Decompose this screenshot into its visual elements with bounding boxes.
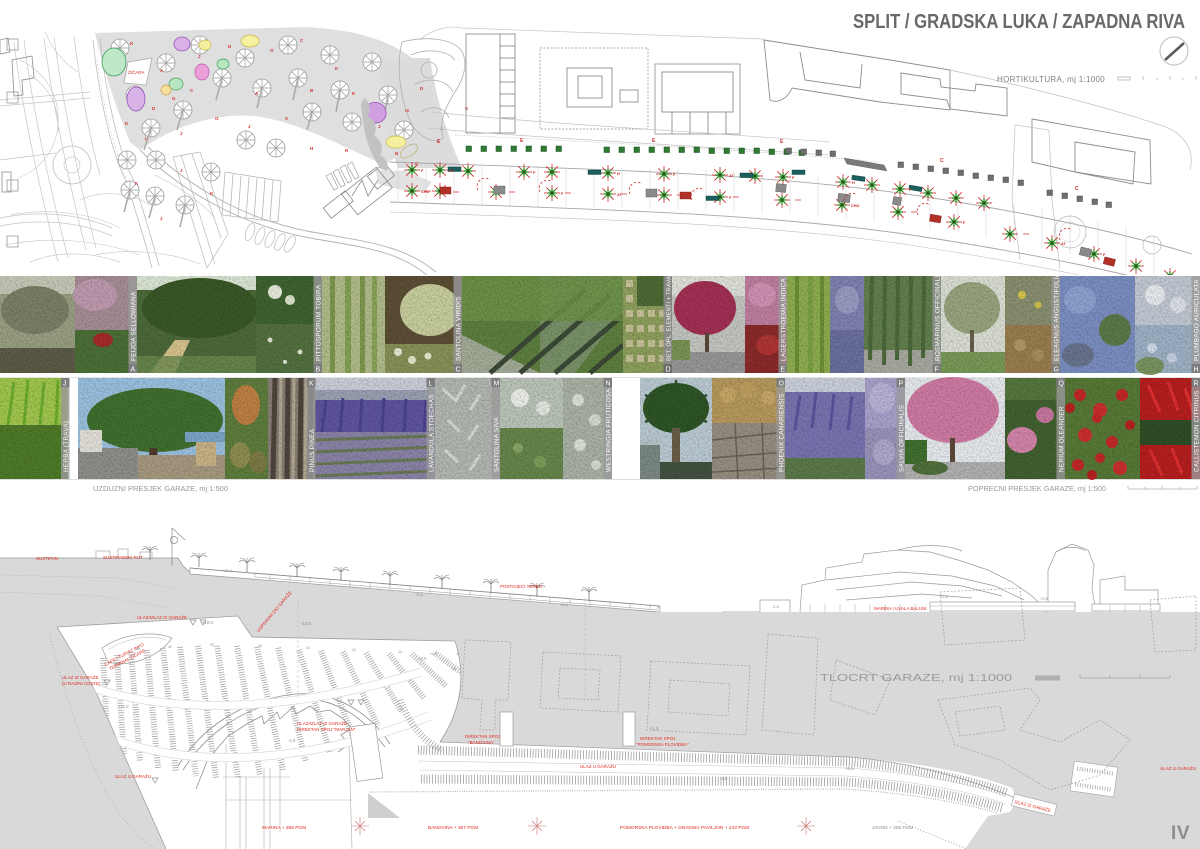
svg-text:C: C: [940, 158, 944, 164]
svg-text:F: F: [963, 221, 966, 225]
svg-text:G: G: [1054, 367, 1059, 374]
svg-text:M: M: [494, 381, 500, 388]
svg-text:PITTOSPORUM TOBIRA: PITTOSPORUM TOBIRA: [316, 284, 323, 361]
svg-text:E: E: [520, 138, 524, 144]
svg-text:"BANOVINA": "BANOVINA": [468, 740, 495, 745]
svg-text:DIREKTAN SPOJ: DIREKTAN SPOJ: [465, 734, 500, 739]
svg-text:+2,0: +2,0: [430, 652, 437, 656]
svg-text:E: E: [781, 367, 786, 374]
svg-text:F: F: [533, 171, 536, 175]
svg-text:+4,5: +4,5: [415, 592, 424, 597]
svg-text:F: F: [935, 367, 939, 374]
svg-text:LAGERSTROEMIA INDICA: LAGERSTROEMIA INDICA: [781, 278, 788, 361]
svg-text:SUSTIPAN: SUSTIPAN: [36, 556, 58, 561]
svg-text:J: J: [160, 216, 163, 221]
svg-text:SANTOLINA SIVA: SANTOLINA SIVA: [494, 416, 501, 472]
svg-text:P: P: [899, 381, 904, 388]
svg-text:L: L: [429, 381, 433, 388]
svg-text:F: F: [729, 196, 732, 200]
svg-text:POSTOJEĆI TEREN: POSTOJEĆI TEREN: [500, 583, 542, 589]
svg-text:N: N: [395, 151, 398, 156]
svg-text:WESTRINGIA FRUTICOSA: WESTRINGIA FRUTICOSA: [606, 388, 613, 472]
svg-text:H: H: [1194, 367, 1199, 374]
svg-text:BANOVINA + 307 PGM: BANOVINA + 307 PGM: [428, 825, 478, 831]
svg-text:-1,5: -1,5: [772, 604, 780, 609]
svg-text:R: R: [1194, 381, 1199, 388]
svg-text:J: J: [180, 168, 183, 173]
svg-text:J: J: [180, 131, 183, 136]
svg-text:LAVANDULA STOECHAS: LAVANDULA STOECHAS: [429, 394, 436, 472]
svg-text:J: J: [63, 381, 67, 388]
svg-text:DIREKTAN SPOJ "MARJAN": DIREKTAN SPOJ "MARJAN": [297, 727, 356, 732]
svg-text:CALLISTEMON CITRINUS: CALLISTEMON CITRINUS: [1194, 390, 1200, 472]
svg-text:ELEAGNUS ANGUSTIFOLIA: ELEAGNUS ANGUSTIFOLIA: [1054, 272, 1061, 361]
svg-text:H: H: [617, 172, 620, 176]
svg-text:X: X: [285, 116, 288, 121]
svg-text:+2,5: +2,5: [1040, 596, 1049, 601]
svg-text:42: 42: [168, 645, 172, 649]
svg-text:FEIJOA SELLOWIANA: FEIJOA SELLOWIANA: [131, 291, 138, 361]
svg-text:+2,5: +2,5: [940, 594, 949, 599]
svg-text:BET. OPL. ELEMENTI + TRAVA: BET. OPL. ELEMENTI + TRAVA: [667, 276, 673, 361]
svg-text:HERBA (TRAVA): HERBA (TRAVA): [63, 421, 70, 472]
svg-text:E: E: [652, 138, 656, 144]
svg-text:F: F: [561, 192, 564, 196]
svg-text:ROSMARINUS OFFICINALIS: ROSMARINUS OFFICINALIS: [935, 271, 942, 361]
svg-text:K: K: [309, 381, 314, 388]
svg-text:A: A: [131, 367, 136, 374]
svg-text:D: D: [666, 367, 671, 374]
svg-text:CHO: CHO: [421, 190, 429, 194]
svg-text:-2,0: -2,0: [720, 776, 728, 781]
svg-text:B: B: [316, 367, 321, 374]
svg-text:+10,0: +10,0: [300, 621, 311, 626]
svg-text:AT: AT: [617, 193, 622, 197]
svg-text:SUSTIPANSKI PUT: SUSTIPANSKI PUT: [103, 555, 143, 560]
svg-text:Q: Q: [1059, 381, 1065, 388]
svg-text:DIREKTAN SPOJ: DIREKTAN SPOJ: [640, 736, 675, 741]
svg-text:14: 14: [306, 646, 310, 650]
svg-text:+11,0: +11,0: [222, 568, 233, 573]
svg-text:"POMORSKA PLOVIDBA": "POMORSKA PLOVIDBA": [636, 742, 689, 747]
svg-text:R: R: [345, 148, 349, 153]
svg-text:G: G: [172, 96, 176, 101]
svg-text:UZDUZNI PRESJEK GARAZE, mj 1:5: UZDUZNI PRESJEK GARAZE, mj 1:500: [93, 484, 228, 493]
svg-text:SALVIA OFFICINALIS: SALVIA OFFICINALIS: [899, 405, 906, 472]
svg-text:+1,5: +1,5: [650, 726, 659, 731]
svg-text:-1,5: -1,5: [288, 738, 296, 743]
svg-text:F: F: [792, 176, 795, 180]
svg-text:E: E: [780, 139, 784, 145]
svg-text:SANTOLINA VIRIDIS: SANTOLINA VIRIDIS: [456, 296, 463, 361]
svg-text:HORTIKULTURA, mj 1:1000: HORTIKULTURA, mj 1:1000: [997, 75, 1105, 84]
svg-text:AT: AT: [729, 174, 734, 178]
svg-text:(U RAZINI CESTE): (U RAZINI CESTE): [62, 681, 101, 686]
svg-text:33: 33: [210, 643, 214, 647]
svg-text:PHOENIX CANARIENSIS: PHOENIX CANARIENSIS: [779, 394, 786, 472]
svg-text:23: 23: [258, 644, 262, 648]
svg-text:H: H: [852, 181, 855, 185]
svg-text:+2,0: +2,0: [418, 656, 427, 661]
svg-text:ULAZ/IZLAZ IZ GARAŽE: ULAZ/IZLAZ IZ GARAŽE: [137, 613, 187, 620]
svg-text:L: L: [145, 136, 148, 141]
svg-text:ULAZ U GARAŽU: ULAZ U GARAŽU: [580, 762, 616, 769]
svg-text:C: C: [1075, 186, 1079, 192]
svg-text:CHO: CHO: [851, 204, 859, 208]
svg-text:MARINA + 288 PGM: MARINA + 288 PGM: [262, 825, 306, 831]
svg-text:MARINA I UVALA BALUNI: MARINA I UVALA BALUNI: [874, 606, 927, 611]
svg-text:+2,5: +2,5: [560, 602, 569, 607]
svg-text:J: J: [248, 124, 251, 129]
svg-text:ULAZ/IZLAZ IZ GARAŽE: ULAZ/IZLAZ IZ GARAŽE: [297, 719, 347, 726]
svg-text:O: O: [779, 381, 785, 388]
svg-text:NERIUM OLEANDER: NERIUM OLEANDER: [1059, 406, 1066, 472]
svg-text:ŽIČARA: ŽIČARA: [128, 68, 145, 75]
svg-text:POMORSKA PLOVIDBA + GRADSKI PA: POMORSKA PLOVIDBA + GRADSKI PAVILJON + 2…: [620, 825, 749, 831]
svg-text:ULAZ IZ GARAŽE: ULAZ IZ GARAŽE: [62, 673, 99, 680]
svg-text:PINUS PINEA: PINUS PINEA: [309, 428, 316, 472]
svg-text:ULAZ U GARAŽU: ULAZ U GARAŽU: [1160, 764, 1196, 771]
svg-text:O: O: [215, 116, 219, 121]
svg-text:N: N: [606, 381, 611, 388]
svg-text:F: F: [1103, 253, 1106, 257]
svg-text:JAVNO + 205 PGM: JAVNO + 205 PGM: [872, 825, 913, 831]
svg-text:IV: IV: [1171, 823, 1190, 844]
svg-text:O: O: [270, 48, 274, 53]
svg-text:50: 50: [136, 647, 140, 651]
svg-text:K: K: [135, 181, 139, 186]
svg-text:41: 41: [352, 648, 356, 652]
svg-text:+11,0: +11,0: [118, 704, 129, 709]
svg-text:28: 28: [452, 667, 456, 671]
svg-text:H: H: [310, 146, 313, 151]
svg-text:AT: AT: [449, 169, 454, 173]
svg-text:SPLIT / GRADSKA LUKA / ZAPADNA: SPLIT / GRADSKA LUKA / ZAPADNA RIVA: [853, 10, 1185, 33]
svg-text:+8,5: +8,5: [845, 766, 854, 771]
svg-text:PLUMBAGO AURICULATA: PLUMBAGO AURICULATA: [1194, 279, 1200, 361]
svg-text:ULAZ U GARAŽU: ULAZ U GARAŽU: [115, 772, 151, 779]
svg-text:C: C: [456, 367, 461, 374]
svg-text:POPRECNI PRESJEK GARAZE, mj 1:: POPRECNI PRESJEK GARAZE, mj 1:500: [968, 484, 1106, 493]
svg-text:12: 12: [398, 650, 402, 654]
svg-text:AT: AT: [1061, 242, 1066, 246]
svg-text:F: F: [421, 169, 424, 173]
svg-text:TLOCRT GARAZE, mj 1:1000: TLOCRT GARAZE, mj 1:1000: [820, 672, 1012, 684]
